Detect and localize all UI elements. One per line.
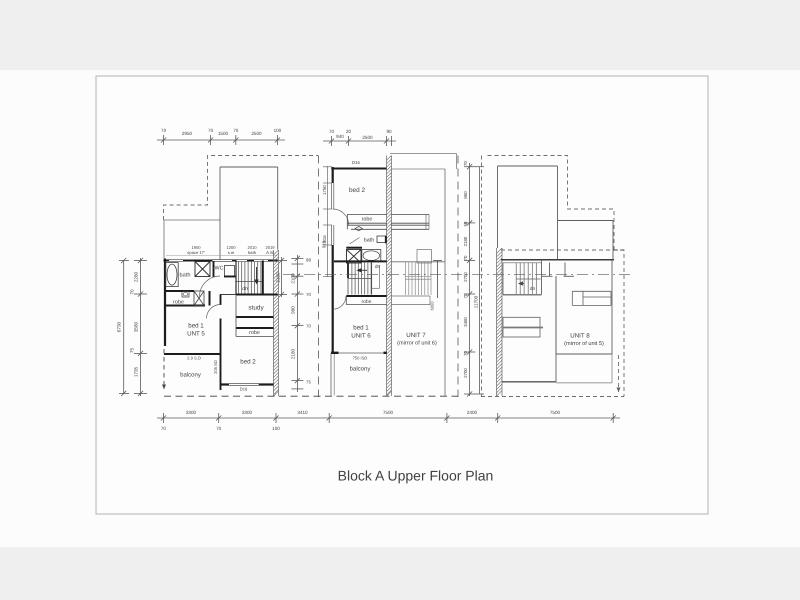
svg-text:3580: 3580 [134, 321, 139, 332]
svg-text:6050: 6050 [430, 301, 435, 311]
svg-text:98: 98 [306, 258, 311, 263]
svg-text:100: 100 [274, 128, 282, 133]
svg-text:3410: 3410 [297, 410, 308, 415]
svg-text:bed 1: bed 1 [188, 323, 204, 330]
svg-text:2180: 2180 [291, 348, 296, 359]
svg-text:1500: 1500 [218, 131, 229, 136]
svg-text:robe: robe [362, 217, 373, 223]
svg-text:2500: 2500 [251, 131, 262, 136]
svg-text:7500: 7500 [383, 410, 394, 415]
svg-text:2500: 2500 [362, 135, 373, 140]
svg-text:70: 70 [463, 351, 468, 356]
svg-text:2280: 2280 [134, 271, 139, 282]
svg-text:70: 70 [306, 324, 311, 329]
svg-text:UNT 5: UNT 5 [187, 331, 205, 338]
svg-text:bath: bath [364, 238, 375, 244]
svg-text:UNIT 8: UNIT 8 [570, 333, 590, 340]
svg-text:1735: 1735 [134, 366, 139, 377]
svg-text:D16: D16 [352, 160, 360, 165]
svg-text:bed 1: bed 1 [353, 325, 369, 332]
svg-text:50: 50 [463, 221, 468, 226]
svg-text:study: study [248, 305, 264, 312]
svg-text:70: 70 [233, 128, 239, 133]
svg-text:70: 70 [161, 128, 167, 133]
svg-text:205 SD: 205 SD [213, 360, 218, 374]
svg-text:2700: 2700 [463, 272, 468, 282]
svg-text:bath: bath [180, 272, 191, 279]
svg-text:2700: 2700 [463, 368, 468, 378]
svg-text:7500: 7500 [550, 410, 561, 415]
svg-text:2400: 2400 [467, 410, 478, 415]
svg-text:balcony: balcony [180, 372, 201, 379]
svg-text:dn: dn [530, 286, 536, 292]
svg-text:2.9 S.D: 2.9 S.D [187, 356, 201, 361]
svg-text:balcony: balcony [350, 366, 371, 373]
svg-text:2950: 2950 [182, 131, 193, 136]
svg-text:70: 70 [216, 426, 222, 431]
svg-text:70: 70 [329, 129, 335, 134]
svg-text:6730: 6730 [117, 321, 122, 332]
svg-text:11700: 11700 [474, 295, 479, 308]
svg-text:Block A Upper Floor Plan: Block A Upper Floor Plan [338, 468, 494, 484]
svg-text:3300: 3300 [242, 410, 253, 415]
svg-text:70: 70 [130, 289, 135, 295]
svg-text:bath: bath [248, 250, 257, 255]
svg-text:75: 75 [130, 348, 135, 354]
svg-text:dn: dn [242, 286, 248, 292]
svg-text:bed 2: bed 2 [349, 187, 365, 194]
svg-text:90: 90 [386, 129, 392, 134]
svg-text:s.m: s.m [228, 250, 235, 255]
svg-text:100: 100 [272, 426, 280, 431]
svg-text:WC: WC [215, 266, 224, 272]
svg-text:860: 860 [463, 191, 468, 199]
svg-text:robe: robe [249, 330, 260, 336]
svg-text:990: 990 [291, 306, 296, 314]
svg-text:A.W: A.W [266, 250, 274, 255]
svg-text:UNIT 7: UNIT 7 [406, 332, 426, 339]
svg-text:robe: robe [361, 299, 371, 305]
svg-text:70: 70 [463, 255, 468, 260]
svg-text:(mirror of unit 6): (mirror of unit 6) [397, 340, 437, 347]
svg-text:70: 70 [463, 161, 468, 166]
svg-text:1750: 1750 [322, 185, 327, 195]
svg-text:2180: 2180 [463, 236, 468, 246]
svg-text:D18: D18 [240, 387, 248, 392]
svg-text:70: 70 [208, 128, 214, 133]
svg-text:940: 940 [336, 134, 344, 139]
svg-text:3300: 3300 [186, 410, 197, 415]
svg-text:dn: dn [375, 264, 381, 270]
svg-text:UNIT 6: UNIT 6 [351, 333, 371, 340]
svg-text:70: 70 [463, 293, 468, 298]
svg-text:70: 70 [161, 426, 167, 431]
svg-text:3460: 3460 [463, 317, 468, 327]
svg-text:bed 2: bed 2 [240, 359, 256, 366]
svg-text:70: 70 [306, 292, 311, 297]
svg-text:20: 20 [346, 129, 352, 134]
svg-text:916: 916 [322, 235, 327, 243]
svg-text:750 ISD: 750 ISD [353, 356, 368, 361]
svg-text:(mirror of unit 5): (mirror of unit 5) [564, 340, 604, 347]
svg-text:space 17': space 17' [187, 250, 205, 255]
svg-text:75: 75 [306, 380, 311, 385]
